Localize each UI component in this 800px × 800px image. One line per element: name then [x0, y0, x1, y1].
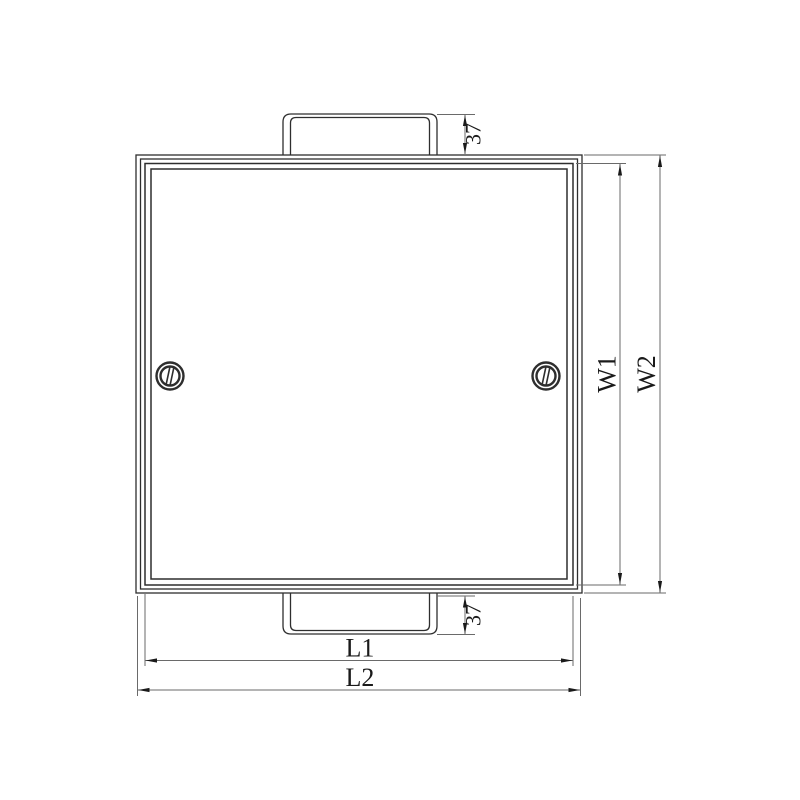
cover-edge-rect	[145, 164, 573, 586]
bottom-tab-inner-wall	[291, 593, 430, 631]
dim-label-l2: L2	[346, 663, 375, 692]
flange-step-rect	[141, 159, 578, 589]
dim-arrow-up-icon	[618, 164, 622, 176]
left-screw-slot-icon	[166, 366, 174, 385]
dim-label-w2: W2	[632, 355, 661, 393]
top-tab-inner-wall	[291, 118, 430, 156]
dim-arrow-right-icon	[561, 658, 573, 662]
dim-arrow-left-icon	[138, 688, 150, 692]
dimension-inner-width-w1: W1	[576, 164, 626, 586]
dim-label-l1: L1	[346, 634, 375, 663]
outer-flange-rect	[136, 155, 582, 593]
dim-arrow-right-icon	[569, 688, 581, 692]
bottom-tab-outline	[283, 593, 437, 635]
left-screw	[157, 363, 184, 390]
dim-label-w1: W1	[593, 355, 622, 393]
dim-arrow-down-icon	[658, 581, 662, 593]
dim-arrow-up-icon	[658, 156, 662, 168]
dim-label-top-tab: 37	[461, 123, 486, 145]
cover-face-rect	[151, 169, 567, 579]
dim-arrow-left-icon	[146, 658, 158, 662]
technical-drawing: 37 37 W1	[0, 0, 800, 800]
top-tab-outline	[283, 114, 437, 156]
dimensions: 37 37 W1	[138, 115, 667, 697]
dim-label-bottom-tab: 37	[461, 604, 486, 626]
panel-body	[136, 114, 582, 634]
dimension-top-tab-depth: 37	[437, 115, 486, 155]
drawing-canvas: 37 37 W1	[0, 0, 800, 800]
right-screw	[533, 363, 560, 390]
right-screw-slot-icon	[542, 366, 550, 385]
dim-arrow-down-icon	[618, 573, 622, 585]
dimension-bottom-tab-depth: 37	[437, 596, 486, 635]
